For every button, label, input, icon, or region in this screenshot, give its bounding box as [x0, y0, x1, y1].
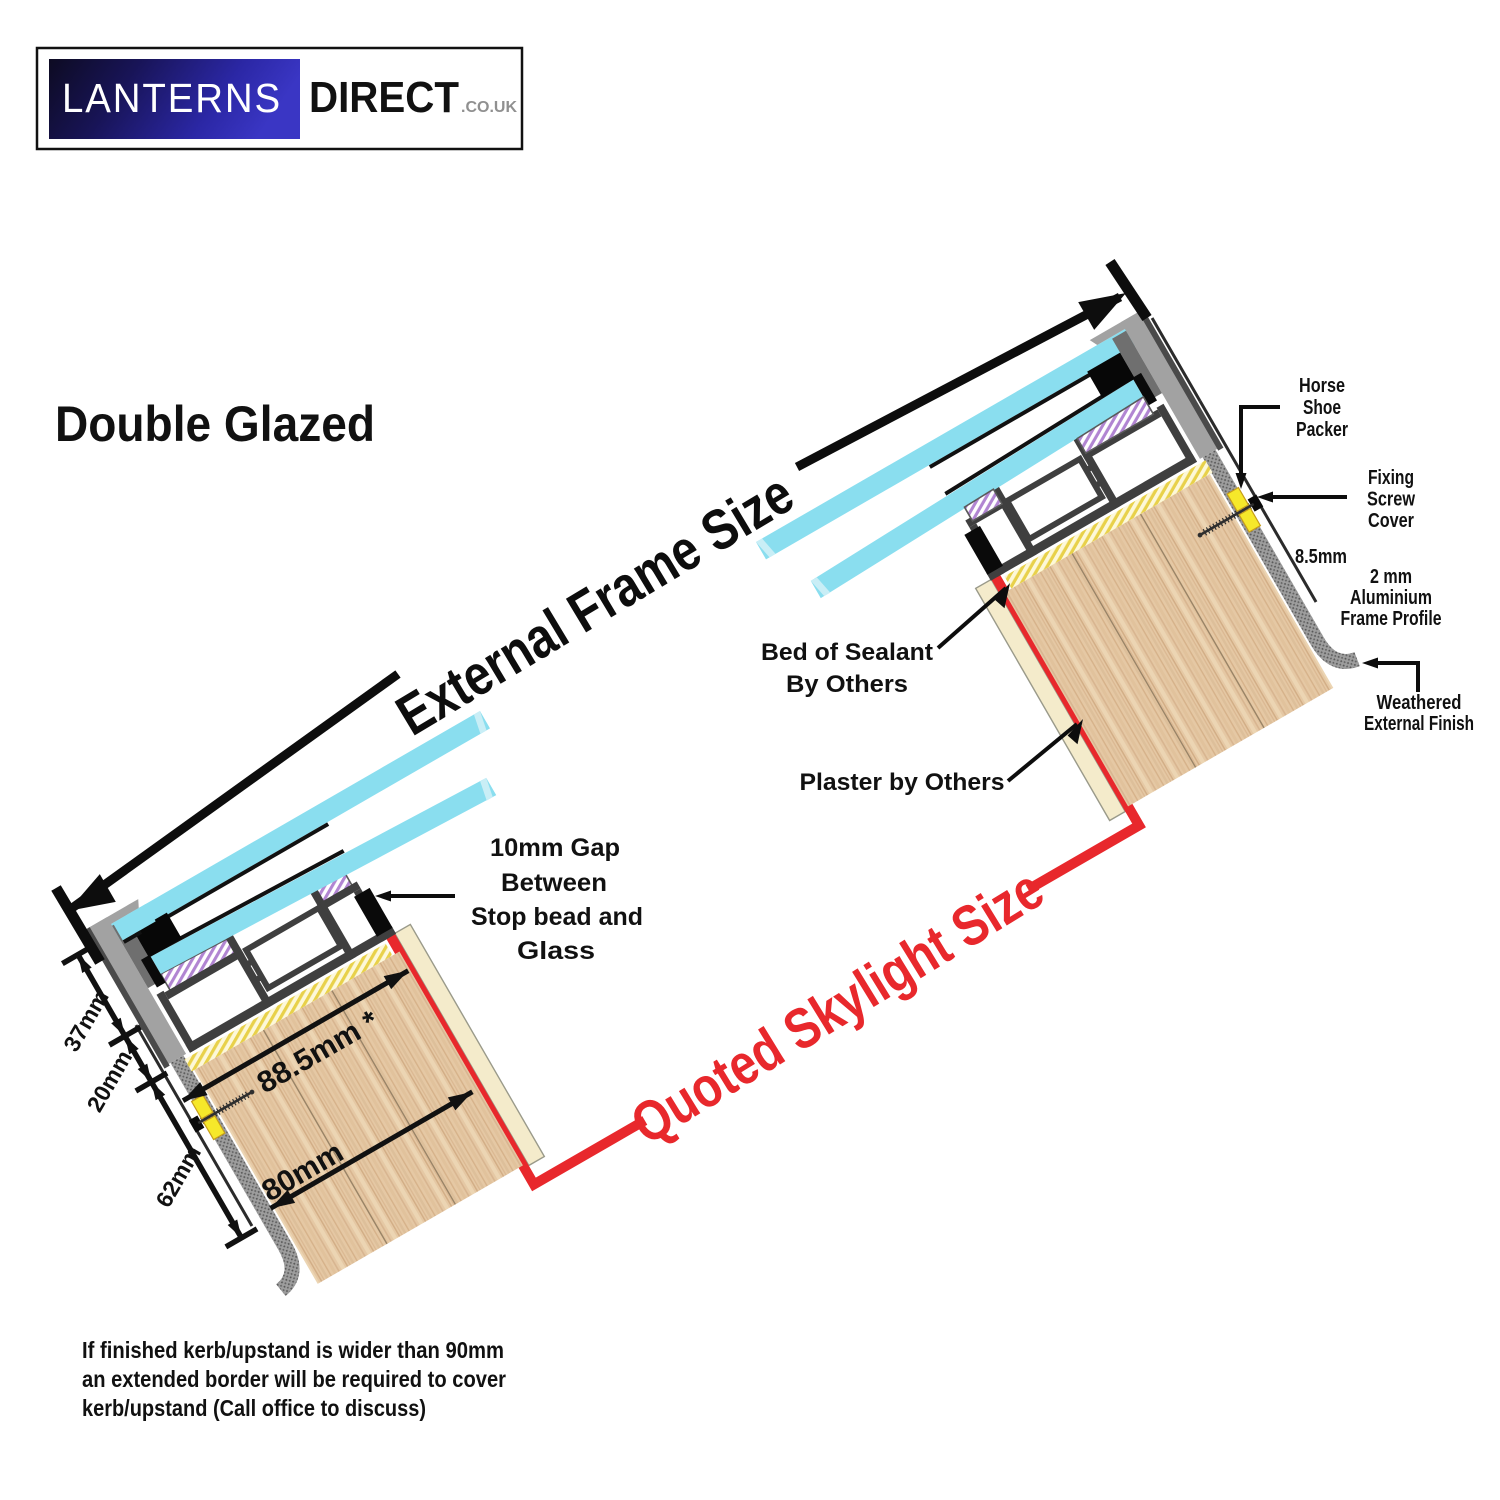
svg-text:Between: Between [501, 869, 607, 897]
svg-text:.CO.UK: .CO.UK [461, 99, 517, 116]
svg-text:If finished kerb/upstand is wi: If finished kerb/upstand is wider than 9… [82, 1337, 504, 1363]
svg-text:DIRECT: DIRECT [309, 73, 459, 122]
svg-text:Horse: Horse [1299, 375, 1345, 397]
svg-text:2 mm: 2 mm [1370, 566, 1412, 588]
svg-text:Stop bead and: Stop bead and [471, 903, 643, 931]
svg-text:Quoted Skylight Size: Quoted Skylight Size [620, 857, 1054, 1157]
svg-text:10mm Gap: 10mm Gap [490, 834, 620, 862]
svg-text:Screw: Screw [1367, 489, 1415, 511]
svg-text:Shoe: Shoe [1303, 397, 1341, 419]
svg-text:External Frame Size: External Frame Size [386, 462, 805, 749]
svg-text:By Others: By Others [786, 671, 908, 698]
svg-text:Frame Profile: Frame Profile [1341, 608, 1442, 630]
svg-text:37mm: 37mm [58, 985, 114, 1056]
svg-text:External Finish: External Finish [1364, 713, 1474, 735]
svg-text:Packer: Packer [1296, 419, 1348, 441]
svg-text:62mm: 62mm [150, 1141, 206, 1212]
svg-text:Weathered: Weathered [1377, 692, 1462, 714]
svg-text:20mm: 20mm [81, 1046, 137, 1117]
svg-text:Fixing: Fixing [1368, 467, 1414, 489]
svg-text:an extended border will be req: an extended border will be required to c… [82, 1366, 506, 1392]
svg-text:Cover: Cover [1368, 510, 1414, 532]
svg-text:Aluminium: Aluminium [1350, 587, 1432, 609]
svg-text:LANTERNS: LANTERNS [62, 75, 282, 121]
svg-text:kerb/upstand (Call office to d: kerb/upstand (Call office to discuss) [82, 1395, 426, 1421]
svg-text:Glass: Glass [517, 937, 595, 965]
svg-text:Plaster by Others: Plaster by Others [800, 769, 1005, 796]
svg-text:8.5mm: 8.5mm [1295, 546, 1347, 568]
svg-text:Double Glazed: Double Glazed [55, 396, 375, 452]
svg-text:Bed of Sealant: Bed of Sealant [761, 639, 933, 666]
